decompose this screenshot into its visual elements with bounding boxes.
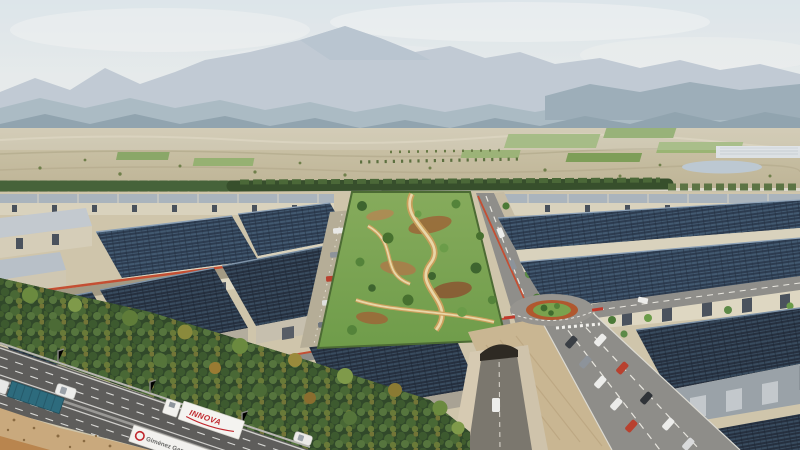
scene-canvas: INNOVA Giménez Ganga — [0, 0, 800, 450]
haze-overlay — [0, 0, 800, 150]
pond — [682, 161, 762, 174]
industrial-park-render: INNOVA Giménez Ganga — [0, 0, 800, 450]
